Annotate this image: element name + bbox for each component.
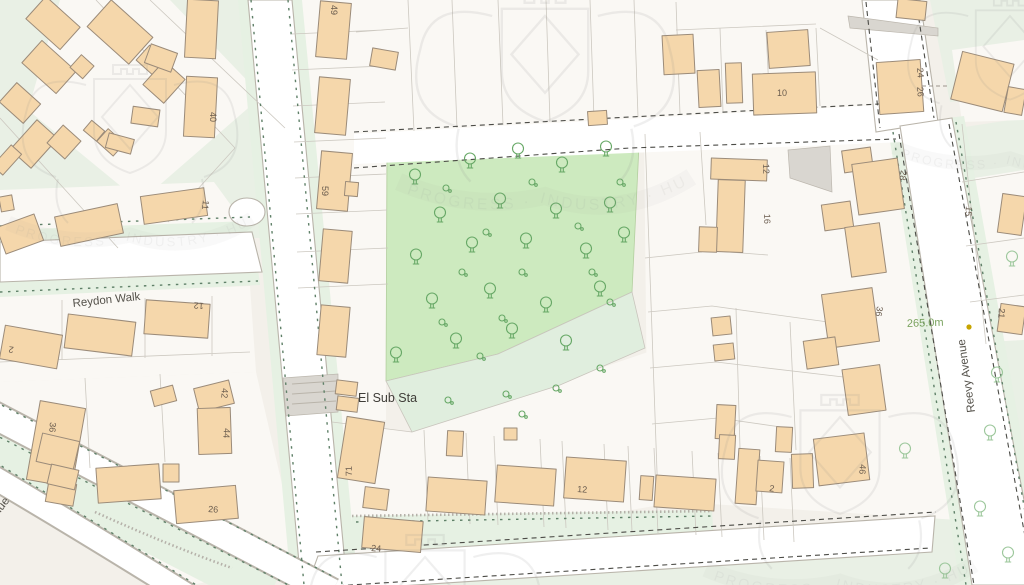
building <box>363 487 389 511</box>
building <box>821 201 853 231</box>
house-number: 11 <box>200 200 211 210</box>
building <box>725 63 742 104</box>
building <box>370 48 399 70</box>
house-number: 71 <box>344 466 354 476</box>
building <box>319 229 352 283</box>
building <box>845 223 887 277</box>
building <box>96 464 161 503</box>
substation-label: El Sub Sta <box>358 391 417 405</box>
building <box>426 477 487 515</box>
house-number: 49 <box>329 5 339 15</box>
building <box>344 182 358 197</box>
building <box>775 427 792 453</box>
house-number: 36 <box>873 306 884 317</box>
building <box>715 405 736 440</box>
driveway <box>283 374 338 416</box>
building <box>654 475 716 511</box>
building <box>639 476 654 501</box>
house-number: 44 <box>221 428 232 439</box>
house-number: 24 <box>915 67 926 78</box>
building <box>803 337 839 369</box>
building <box>767 30 810 69</box>
building <box>185 0 219 59</box>
house-number: 12 <box>761 164 771 174</box>
house-number: 28 <box>897 170 908 181</box>
building <box>504 428 517 440</box>
building <box>564 457 627 502</box>
building <box>183 76 217 138</box>
building <box>317 151 353 211</box>
house-number: 26 <box>915 86 926 97</box>
building <box>735 448 760 504</box>
building <box>588 110 608 125</box>
building <box>896 0 927 21</box>
building <box>716 180 745 253</box>
building <box>317 305 350 357</box>
map-viewport[interactable]: PROGRESS · INDUSTRY · HUMANITY <box>0 0 1024 585</box>
spot-height-label: 265.0m <box>907 317 944 330</box>
building <box>495 465 556 506</box>
building-substation <box>335 380 358 396</box>
building <box>711 158 768 181</box>
spot-height-dot <box>966 324 971 329</box>
building <box>446 431 463 457</box>
building <box>713 343 735 361</box>
house-number: 40 <box>208 112 218 122</box>
building <box>315 77 351 135</box>
building <box>852 158 905 215</box>
house-number: 24 <box>371 543 382 554</box>
house-number: 10 <box>777 88 787 98</box>
building <box>163 464 179 482</box>
building <box>711 316 732 336</box>
map-canvas: PROGRESS · INDUSTRY · HUMANITY <box>0 0 1024 585</box>
building-substation <box>336 396 359 412</box>
house-number: 46 <box>857 464 868 475</box>
building <box>174 485 239 523</box>
building <box>842 365 886 416</box>
building <box>131 106 160 127</box>
house-number: 15 <box>963 206 974 217</box>
building <box>0 195 14 212</box>
house-number: 26 <box>208 504 219 515</box>
house-number: 36 <box>47 422 58 433</box>
house-number: 59 <box>320 186 330 196</box>
house-number: 12 <box>577 484 588 495</box>
house-number: 16 <box>762 214 772 224</box>
house-number: 42 <box>219 388 230 399</box>
building <box>697 69 721 107</box>
house-number: 12 <box>193 300 204 311</box>
house-number: 21 <box>996 308 1007 319</box>
building <box>699 227 718 253</box>
